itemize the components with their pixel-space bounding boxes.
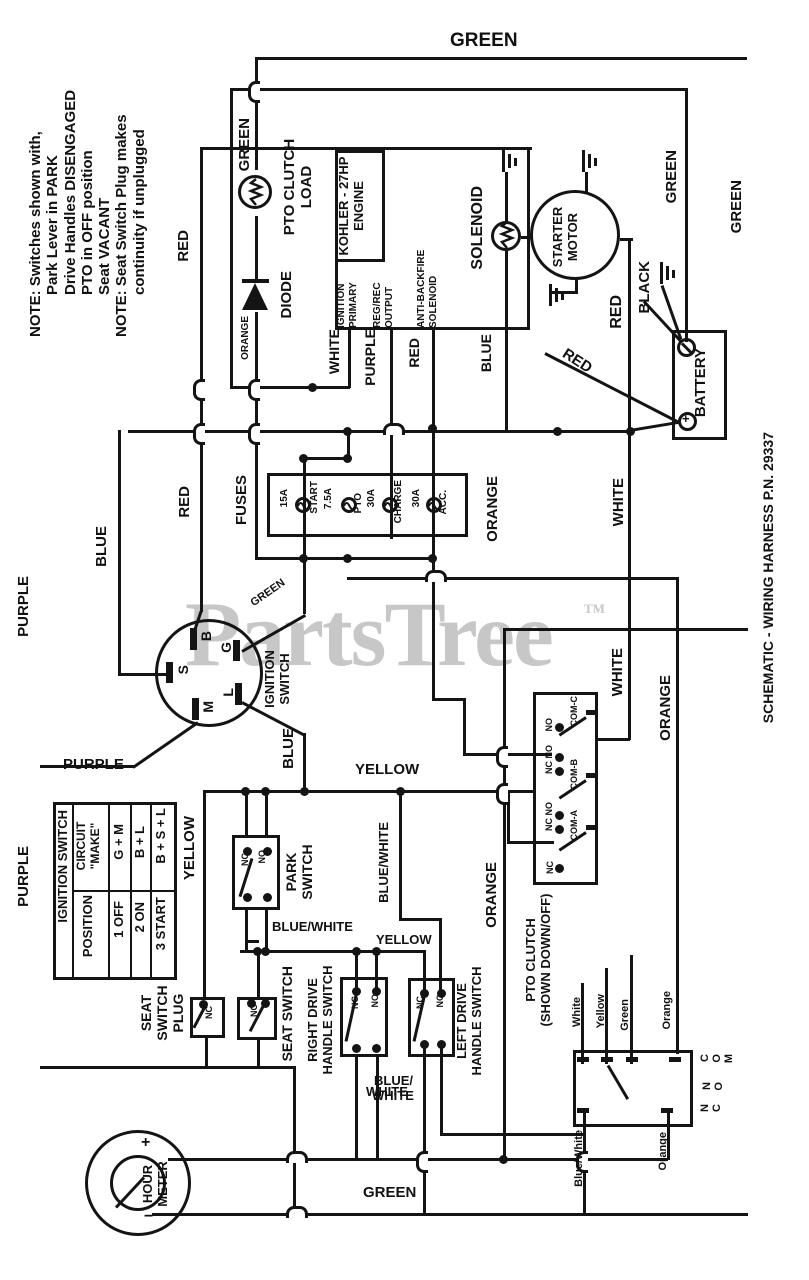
wire-label: ACC.: [439, 490, 450, 514]
label-line: OUTPUT: [384, 266, 396, 328]
wire-label: Blue/White: [574, 1130, 586, 1187]
terminal-pad: [577, 1108, 589, 1113]
diode-icon: [242, 283, 268, 310]
wire-label: NC: [241, 853, 251, 866]
wire-label-bluewhite-1: BLUE/WHITE: [272, 920, 353, 934]
junction-dot: [300, 787, 309, 796]
label-line: "MAKE": [89, 806, 103, 886]
crossover-bump: [248, 379, 260, 401]
wire-label: 15A: [280, 489, 291, 507]
wire-label-green-pto: GREEN: [237, 118, 253, 171]
junction-dot: [372, 947, 381, 956]
junction-dot: [428, 554, 437, 563]
label-line: SEAT: [138, 976, 154, 1050]
right-drive-label: RIGHT DRIVEHANDLE SWITCH: [306, 960, 336, 1080]
crossover-bump: [496, 746, 508, 768]
terminal-pad: [166, 662, 173, 683]
park-switch-label: PARKSWITCH: [283, 834, 315, 910]
table-header: IGNITION SWITCH: [56, 810, 70, 923]
wire-label: 2 ON: [133, 902, 147, 932]
wire: [597, 738, 630, 741]
junction-dot: [241, 787, 250, 796]
note-line: PTO in OFF position: [79, 85, 96, 337]
battery-plus: +: [682, 412, 690, 426]
wire-label: Yellow: [596, 994, 608, 1028]
junction-dot: [308, 383, 317, 392]
terminal-pad: [190, 628, 197, 650]
label-line: SWITCH: [154, 976, 170, 1050]
note-line: NOTE: Switches shown with,: [27, 85, 44, 337]
junction-dot: [343, 554, 352, 563]
wire: [399, 918, 442, 921]
notes: NOTE: Switches shown with,Park Lever in …: [27, 85, 148, 337]
wire-label: NO: [545, 745, 555, 759]
terminal-pad: [577, 1057, 589, 1062]
terminal-pad: [669, 1057, 681, 1062]
label-line: REG/REC: [372, 266, 384, 328]
right-drive-switch-box: [340, 977, 388, 1057]
junction-dot: [352, 947, 361, 956]
wire-label-red-antibackfire: RED: [407, 338, 422, 368]
note-line: Seat VACANT: [96, 85, 113, 337]
wire-label-red-fuse: RED: [177, 486, 193, 518]
wire-label: O: [714, 1082, 726, 1091]
label-line: SWITCH: [278, 636, 293, 722]
hour-meter-plus: +: [141, 1134, 150, 1151]
note-line: NOTE: Seat Switch Plug makes: [113, 85, 130, 337]
wire: [399, 790, 402, 920]
wire-label: COM-A: [570, 810, 580, 841]
wire: [685, 88, 688, 342]
junction-dot: [396, 787, 405, 796]
wire-label: NO: [545, 718, 555, 732]
wire-label: NC: [250, 1004, 260, 1017]
wire-label: NC: [351, 996, 361, 1009]
schematic-title: SCHEMATIC - WIRING HARNESS P.N. 29337: [761, 432, 776, 723]
crossover-bump: [193, 423, 205, 445]
wire: [503, 628, 506, 1158]
solenoid-label: SOLENOID: [469, 186, 486, 270]
wire-label-blue-l: BLUE: [281, 728, 297, 769]
wire-label-purple-regrec: PURPLE: [363, 329, 378, 386]
terminal-pad: [192, 698, 199, 720]
wire-label: PTO: [354, 493, 365, 513]
coil-icon: [249, 179, 263, 207]
wire: [265, 790, 268, 837]
wire: [152, 1213, 748, 1216]
wire: [463, 698, 466, 755]
terminal-pad: [586, 825, 598, 830]
label-line: METER: [156, 1160, 171, 1208]
junction-dot: [299, 554, 308, 563]
wire: [257, 1040, 260, 1068]
wire: [255, 216, 258, 282]
label-line: HANDLE SWITCH: [321, 960, 336, 1080]
junction-dot: [626, 427, 635, 436]
crossover-bump: [416, 1151, 428, 1173]
starter-motor-label: STARTERMOTOR: [551, 197, 581, 277]
label-line: RIGHT DRIVE: [306, 960, 321, 1080]
wire-label: Orange: [662, 991, 674, 1030]
wire: [432, 698, 466, 701]
wire-label: CHARGE: [394, 480, 405, 523]
note-line: continuity if unplugged: [131, 85, 148, 337]
wire-label-bluewhite-2a: BLUE/: [374, 1074, 413, 1088]
junction-dot: [343, 454, 352, 463]
crossover-bump: [496, 783, 508, 805]
ground-icon: [549, 284, 567, 308]
wire-label: Orange: [658, 1132, 670, 1171]
wire-label-green-border: GREEN: [729, 180, 745, 233]
wire: [205, 1038, 208, 1068]
anti-backfire-label: ANTI-BACKFIRESOLENOID: [416, 228, 439, 328]
label-line: SWITCH: [299, 834, 315, 910]
ignition-switch-label: IGNITIONSWITCH: [263, 636, 293, 722]
regrec-output-label: REG/RECOUTPUT: [372, 266, 395, 328]
wire-label: COM-C: [570, 696, 580, 727]
wire-label: NO: [436, 994, 446, 1008]
junction-dot: [261, 787, 270, 796]
wire-label-green-battery: GREEN: [664, 150, 680, 203]
ground-icon: [502, 150, 520, 174]
wire-label-red-starter: RED: [608, 295, 625, 329]
wire-label: White: [572, 997, 584, 1027]
label-line: (SHOWN DOWN/OFF): [539, 884, 554, 1036]
label-line: IGNITION: [336, 266, 348, 328]
wire-label: S: [176, 665, 191, 674]
wire-label-purple-m: PURPLE: [63, 757, 124, 773]
wire-label: B: [199, 631, 214, 641]
wire: [440, 1133, 583, 1136]
label-line: PTO CLUTCH: [524, 884, 539, 1036]
wire-label-orange-fuse: ORANGE: [485, 476, 501, 542]
ground-icon: [660, 262, 678, 286]
label-line: LEFT DRIVE: [455, 960, 470, 1082]
wire-label: NC: [545, 818, 555, 831]
wire: [255, 57, 258, 170]
seat-switch-label: SEAT SWITCH: [280, 966, 295, 1061]
wire-label-white-right-2: WHITE: [610, 648, 626, 696]
wire-label-yellow-drive: YELLOW: [376, 933, 432, 947]
wire: [245, 790, 248, 837]
wire-label: NO: [545, 802, 555, 816]
wire-label: 7.5A: [324, 488, 335, 509]
wire-label: POSITION: [81, 895, 95, 957]
wire-label: G + M: [112, 824, 126, 860]
ignition-primary-label: IGNITIONPRIMARY: [336, 266, 359, 328]
junction-dot: [428, 424, 437, 433]
wire-label-bluewhite-2b: WHITE: [372, 1089, 414, 1103]
terminal-pad: [586, 710, 598, 715]
seat-switch-plug-label: SEATSWITCHPLUG: [138, 976, 186, 1050]
wire-label: 30A: [412, 489, 423, 507]
coil-icon: [500, 222, 514, 250]
wire: [503, 628, 748, 631]
label-line: HOUR: [141, 1160, 156, 1208]
crossover-bump: [425, 570, 447, 582]
crossover-bump: [248, 81, 260, 103]
wire-label: COM-B: [570, 759, 580, 790]
wire-label-bluewhite-v: BLUE/WHITE: [377, 822, 391, 903]
label-line: PTO CLUTCH: [281, 128, 298, 246]
wire-label-white-right-1: WHITE: [611, 478, 627, 526]
wire-label-purple-left-2: PURPLE: [16, 846, 32, 907]
terminal-pad: [661, 1108, 673, 1113]
left-drive-switch-box: [408, 978, 455, 1057]
note-line: Park Lever in PARK: [44, 85, 61, 337]
label-line: HANDLE SWITCH: [470, 960, 485, 1082]
junction-dot: [261, 947, 270, 956]
wire: [348, 330, 351, 388]
wire-label: NC: [546, 861, 556, 874]
left-drive-label: LEFT DRIVEHANDLE SWITCH: [455, 960, 485, 1082]
terminal-pad: [586, 773, 598, 778]
wire: [620, 238, 633, 241]
pto-clutch-switch-box: [533, 692, 598, 885]
junction-dot: [299, 454, 308, 463]
wire-label-yellow-seat: YELLOW: [182, 816, 198, 880]
battery-label: BATTERY: [693, 348, 709, 417]
wire: [230, 88, 688, 91]
label-line: CIRCUIT: [75, 806, 89, 886]
table-circuit-make: CIRCUIT"MAKE": [75, 806, 103, 886]
fuses-label: FUSES: [234, 475, 250, 525]
wire: [628, 240, 631, 740]
wire: [203, 790, 535, 793]
label-line: KOHLER - 27HP: [337, 153, 352, 259]
wire-label: 3 START: [154, 897, 168, 950]
wire-label-blue-solenoid: BLUE: [479, 334, 494, 372]
label-line: LOAD: [298, 128, 315, 246]
wire: [303, 733, 306, 792]
diode-label: DIODE: [279, 271, 295, 319]
wire: [118, 430, 121, 675]
wire: [293, 1066, 296, 1215]
wire-label: L: [221, 688, 236, 697]
wire: [257, 952, 260, 999]
wire: [423, 1043, 426, 1215]
label-line: PRIMARY: [348, 266, 360, 328]
wire-label-white-ignition: WHITE: [327, 329, 342, 374]
ground-icon: [582, 150, 600, 174]
junction-dot: [553, 427, 562, 436]
wire: [355, 1057, 358, 1160]
crossover-bump: [286, 1151, 308, 1163]
wire-label: 30A: [367, 489, 378, 507]
wire-label: NC: [545, 761, 555, 774]
crossover-bump: [383, 423, 405, 435]
label-line: PLUG: [170, 976, 186, 1050]
wire: [676, 577, 679, 1054]
pto-clutch-switch-label: PTO CLUTCH(SHOWN DOWN/OFF): [524, 884, 554, 1036]
hour-meter-minus: −: [144, 1208, 153, 1225]
wire: [255, 57, 747, 60]
wire-label: M: [201, 701, 216, 713]
label-line: PARK: [283, 834, 299, 910]
wire-diagonal: [630, 421, 678, 432]
label-line: IGNITION: [263, 636, 278, 722]
note-line: Drive Handles DISENGAGED: [62, 85, 79, 337]
terminal-pad: [601, 1057, 613, 1062]
wire-label: NO: [371, 994, 381, 1008]
wire: [245, 908, 248, 952]
wire-label-orange-diode: ORANGE: [241, 316, 252, 360]
schematic-canvas: PartsTree TM SCHEMATIC - WIRING HARNESS …: [0, 0, 809, 1280]
wire-label: B + S + L: [154, 808, 168, 864]
wire: [265, 908, 268, 952]
wire-label-purple-left-1: PURPLE: [16, 576, 32, 637]
wire-label: NO: [258, 850, 268, 864]
wire-label-yellow-main: YELLOW: [355, 762, 419, 778]
wire-label-green-bottom: GREEN: [363, 1185, 416, 1201]
wire-diagonal: [132, 721, 199, 768]
wire-label: Green: [620, 999, 632, 1031]
junction-dot: [343, 427, 352, 436]
wire-label: B + L: [133, 826, 147, 858]
wire-label: START: [310, 481, 321, 514]
wire-label-blue-s: BLUE: [94, 526, 110, 567]
pto-clutch-load-label: PTO CLUTCHLOAD: [281, 128, 316, 246]
wire: [203, 790, 206, 999]
engine-label: KOHLER - 27HPENGINE: [337, 153, 367, 259]
watermark-tm: TM: [584, 601, 605, 617]
wire-label-orange-mid: ORANGE: [484, 862, 500, 928]
label-line: SOLENOID: [428, 228, 440, 328]
wire-label-red-battery-diag: RED: [559, 346, 594, 377]
label-line: STARTER: [551, 197, 566, 277]
wire: [585, 172, 588, 192]
wire-label: M: [724, 1054, 736, 1063]
wire: [432, 330, 435, 429]
label-line: ANTI-BACKFIRE: [416, 228, 428, 328]
wire-label-red-left: RED: [176, 230, 192, 262]
park-switch-box: [232, 835, 280, 910]
hour-meter-label: HOURMETER: [141, 1160, 171, 1208]
terminal-pad: [626, 1057, 638, 1062]
wire: [575, 278, 578, 294]
junction-dot: [499, 1155, 508, 1164]
wire: [230, 88, 233, 388]
label-line: ENGINE: [352, 153, 367, 259]
crossover-bump: [286, 1206, 308, 1218]
wire-label: 1 OFF: [112, 901, 126, 938]
wire-label-black: BLACK: [637, 261, 653, 314]
wire-label-orange-right: ORANGE: [658, 675, 674, 741]
wire-label: NC: [205, 1006, 215, 1019]
wire: [432, 427, 435, 700]
wire-label-green-top: GREEN: [450, 31, 518, 52]
wire-label: G: [219, 642, 234, 653]
wire-label: C: [712, 1104, 724, 1112]
label-line: MOTOR: [566, 197, 581, 277]
crossover-bump: [193, 379, 205, 401]
wire-label: NC: [416, 996, 426, 1009]
crossover-bump: [248, 423, 260, 445]
